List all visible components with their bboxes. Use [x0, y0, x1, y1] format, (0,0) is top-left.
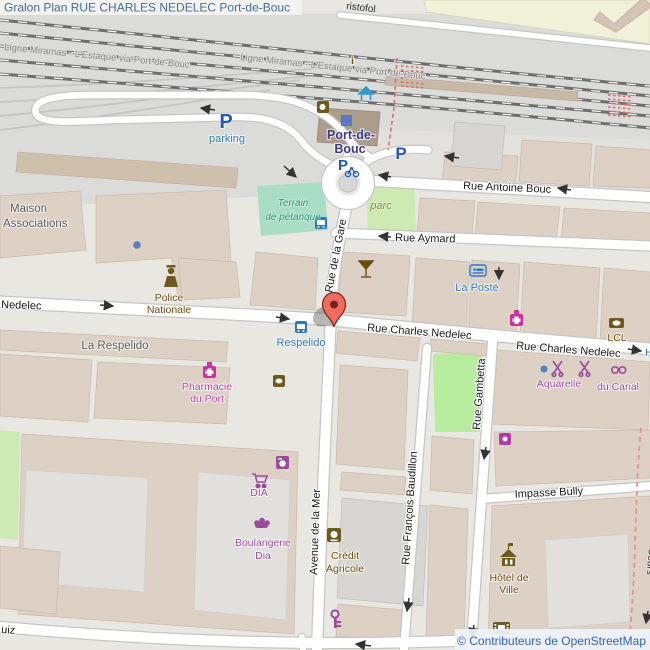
station-p-icon: P [395, 144, 406, 163]
station-name-line1: Port-de- [327, 128, 375, 142]
page-title: Gralon Plan RUE CHARLES NEDELEC Port-de-… [4, 1, 290, 15]
police-label-line2: Nationale [147, 304, 192, 316]
maison-label-line2: Associations [3, 218, 68, 230]
credit-agricole-label-line2: Agricole [326, 563, 364, 575]
street-label-antoine-bouc: Rue Antoine Bouc [463, 180, 552, 196]
attribution-link[interactable]: © Contributeurs de OpenStreetMap [457, 634, 646, 648]
building-dot-aquarelle [541, 366, 548, 373]
building-dot-police [133, 241, 141, 249]
credit-agricole-label-line1: Crédit [331, 550, 359, 562]
brown-amenity-icon [273, 375, 285, 387]
pharmacie-label-line1: Pharmacie [182, 381, 232, 393]
street-label-aymard: Rue Aymard [395, 232, 456, 246]
dia-label: DIA [250, 487, 268, 499]
du-canal-label: du Canal [597, 381, 639, 393]
hotel-de-ville-label-line2: Ville [499, 584, 519, 596]
police-label-line1: Police [155, 292, 184, 304]
shop-icon-bully [499, 433, 511, 445]
bus-stop-icon-respelido [295, 321, 307, 333]
laundry-icon [276, 456, 289, 469]
hotel-de-ville-label-line1: Hôtel de [489, 572, 528, 584]
street-label-ruiz: uiz [1, 624, 16, 637]
street-label-impasse-bully: Impasse Bully [514, 485, 584, 501]
attribution-bar: © Contributeurs de OpenStreetMap [455, 629, 650, 650]
bank-icon-credit-agricole [327, 528, 341, 542]
bank-icon-lcl [609, 318, 624, 328]
la-respelido-label: La Respelido [81, 340, 148, 352]
boulangerie-label-line2: Dia [255, 550, 271, 562]
street-label-nedelec-west: Nedelec [1, 299, 42, 312]
parking-p-icon: P [219, 111, 232, 133]
petanque-label-line1: Terrain [278, 198, 309, 209]
pharmacie-label-line2: du Port [190, 393, 224, 405]
parking-label: parking [209, 133, 245, 145]
map-canvas[interactable]: ristofol Ligne Miramas - L'Estaque via P… [0, 0, 650, 650]
green-strip-left [0, 430, 20, 540]
street-label-h-partial: H [645, 347, 650, 359]
maison-label-line1: Maison [10, 203, 47, 215]
lcl-label: LCL [607, 332, 626, 344]
bike-p-icon: P [338, 157, 348, 174]
station-name-line2: Bouc [334, 142, 365, 156]
parc-label: parc [369, 200, 392, 212]
aquarelle-label: Aquarelle [537, 378, 582, 390]
map-svg: ristofol Ligne Miramas - L'Estaque via P… [0, 0, 650, 650]
title-bar: Gralon Plan RUE CHARLES NEDELEC Port-de-… [0, 0, 302, 15]
cafe-icon [317, 101, 329, 113]
pharmacy-icon-port [203, 362, 216, 378]
info-icon: i [351, 55, 354, 67]
station-icon [341, 115, 352, 126]
petanque-label-line2: de pétanque [265, 212, 321, 223]
la-poste-label: La Poste [455, 282, 498, 294]
boulangerie-label-line1: Boulangerie [235, 537, 291, 549]
respelido-stop-label: Respelido [277, 337, 326, 349]
